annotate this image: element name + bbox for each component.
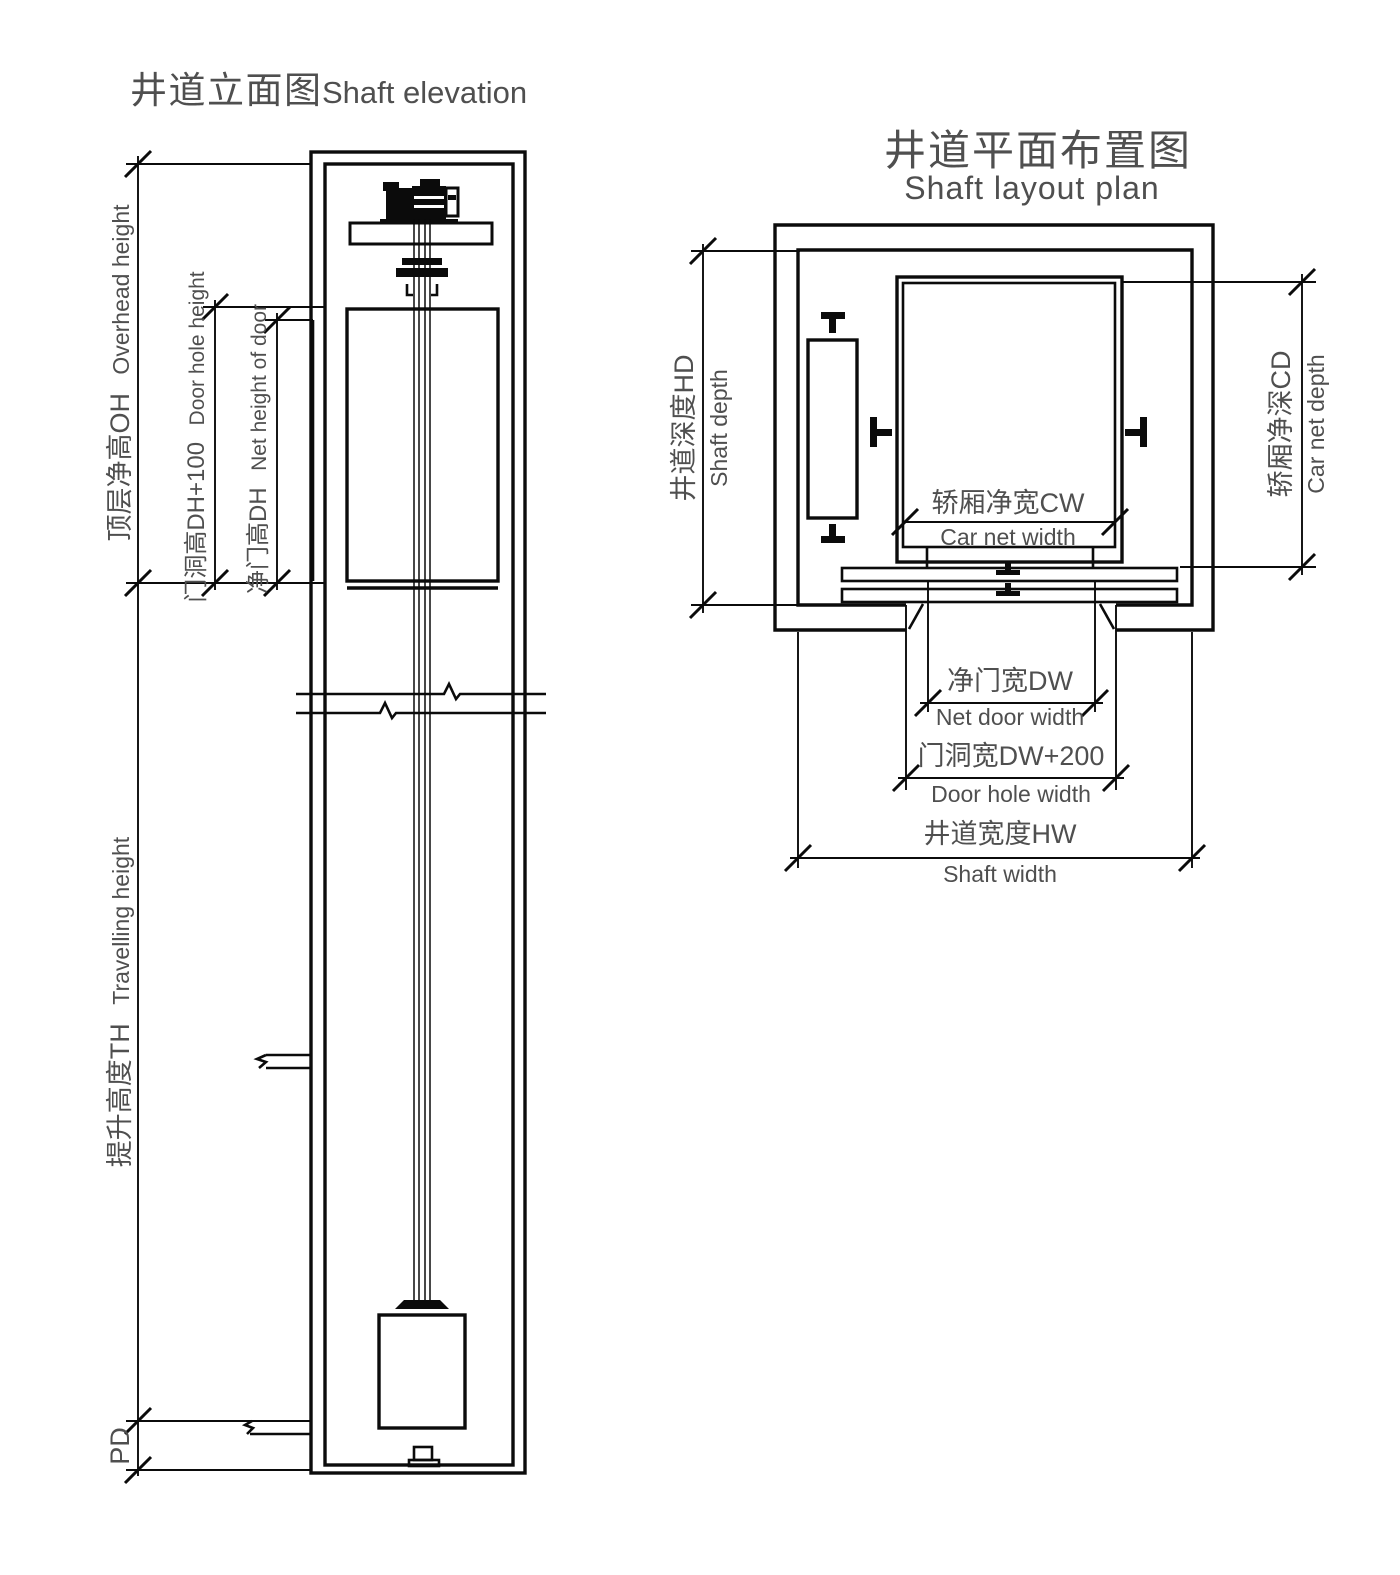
shaft-break-lines xyxy=(296,684,546,718)
bottom-landing-floor xyxy=(126,1421,311,1470)
shaft-drawing-canvas: 井道立面图 Shaft elevation xyxy=(0,0,1400,1575)
shaft-width-label-en: Shaft width xyxy=(943,861,1057,887)
elevator-car-top xyxy=(347,309,498,588)
shaft-layout-plan-drawing: 井道平面布置图 Shaft layout plan xyxy=(669,127,1329,887)
hoist-machine-icon xyxy=(380,179,458,223)
overhead-height-label: 顶层净高OH Overhead height xyxy=(105,204,135,542)
net-door-height-label: 净门高DH Net height of door xyxy=(245,304,272,594)
net-door-height-label-zh: 净门高DH xyxy=(245,487,272,594)
elevation-shaft-walls xyxy=(311,152,525,1473)
travelling-height-label: 提升高度TH Travelling height xyxy=(105,836,135,1167)
buffer-icon xyxy=(409,1447,439,1466)
drawing-page: 井道立面图 Shaft elevation xyxy=(0,0,1400,1575)
pit-car-assembly xyxy=(379,1300,465,1428)
elevation-title-en: Shaft elevation xyxy=(322,75,527,110)
rope-hitch-bottom xyxy=(404,1300,440,1309)
net-door-width-label-zh: 净门宽DW xyxy=(947,666,1073,696)
net-door-height-label-en: Net height of door xyxy=(248,304,271,471)
overhead-height-label-zh: 顶层净高OH xyxy=(105,393,135,542)
car-rail-icons xyxy=(870,417,1147,447)
shaft-depth-label-en: Shaft depth xyxy=(706,369,732,487)
shaft-depth-label-zh: 井道深度HD xyxy=(669,355,699,502)
door-sills xyxy=(842,561,1177,602)
door-hole-width-label-en: Door hole width xyxy=(931,781,1091,807)
counterweight-rail-icons xyxy=(821,312,845,543)
door-hole-height-label-zh: 门洞高DH+100 xyxy=(183,442,210,603)
shaft-depth-dimension: 井道深度HD Shaft depth xyxy=(669,238,800,618)
pit-depth-label: PD xyxy=(105,1427,135,1465)
car-net-depth-dimension: 轿厢净深CD Car net depth xyxy=(1122,269,1329,580)
overhead-height-label-en: Overhead height xyxy=(108,204,134,375)
car-wall-outer xyxy=(897,277,1122,562)
shaft-outer-wall xyxy=(311,152,525,1473)
door-hole-height-label-en: Door hole height xyxy=(186,271,209,425)
mid-landing-floor xyxy=(257,1055,311,1068)
elevation-dimension-lines xyxy=(125,151,325,1483)
plan-title-en: Shaft layout plan xyxy=(904,170,1159,206)
car-net-width-label-zh: 轿厢净宽CW xyxy=(932,488,1085,518)
plan-title-zh: 井道平面布置图 xyxy=(884,127,1192,174)
machine-beam xyxy=(350,223,492,244)
hoist-ropes xyxy=(414,219,430,1300)
shaft-width-label-zh: 井道宽度HW xyxy=(924,819,1077,849)
travelling-height-label-zh: 提升高度TH xyxy=(105,1023,135,1167)
travelling-height-label-en: Travelling height xyxy=(108,836,134,1005)
car-outline xyxy=(347,309,498,581)
door-hole-width-label-zh: 门洞宽DW+200 xyxy=(918,741,1105,771)
car-net-width-label-en: Car net width xyxy=(940,524,1076,550)
car-net-depth-label-zh: 轿厢净深CD xyxy=(1266,351,1296,498)
car-net-depth-label-en: Car net depth xyxy=(1303,354,1329,493)
car-net-width-dimension: 轿厢净宽CW Car net width xyxy=(892,488,1128,550)
door-hole-width-dimension: 门洞宽DW+200 Door hole width xyxy=(893,741,1129,807)
net-door-width-label-en: Net door width xyxy=(936,704,1084,730)
bottom-car-outline xyxy=(379,1315,465,1428)
door-hole-height-label: 门洞高DH+100 Door hole height xyxy=(183,271,210,602)
elevation-title-zh: 井道立面图 xyxy=(130,70,323,111)
counterweight xyxy=(808,340,857,518)
shaft-elevation-drawing: 井道立面图 Shaft elevation xyxy=(105,70,546,1483)
rope-hitch-top xyxy=(396,258,448,295)
net-door-width-dimension: 净门宽DW Net door width xyxy=(915,666,1108,730)
